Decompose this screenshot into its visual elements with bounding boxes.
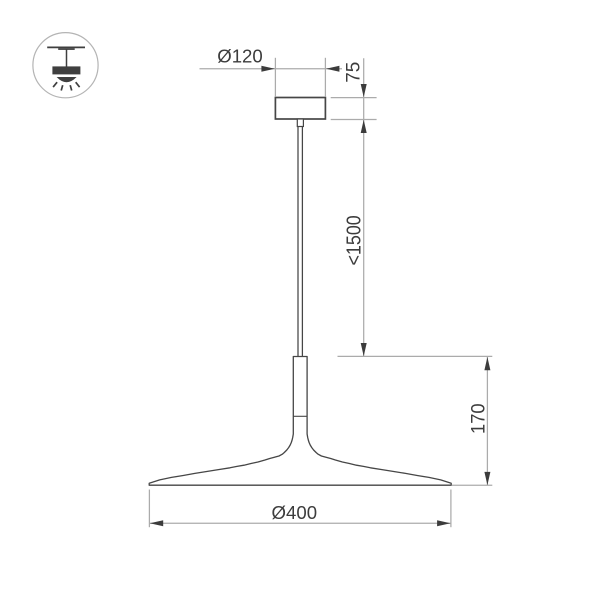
svg-text:Ø400: Ø400 <box>272 502 318 523</box>
svg-text:<1500: <1500 <box>344 215 366 265</box>
svg-text:75: 75 <box>342 62 364 83</box>
svg-text:170: 170 <box>467 403 489 434</box>
svg-text:Ø120: Ø120 <box>217 46 263 67</box>
